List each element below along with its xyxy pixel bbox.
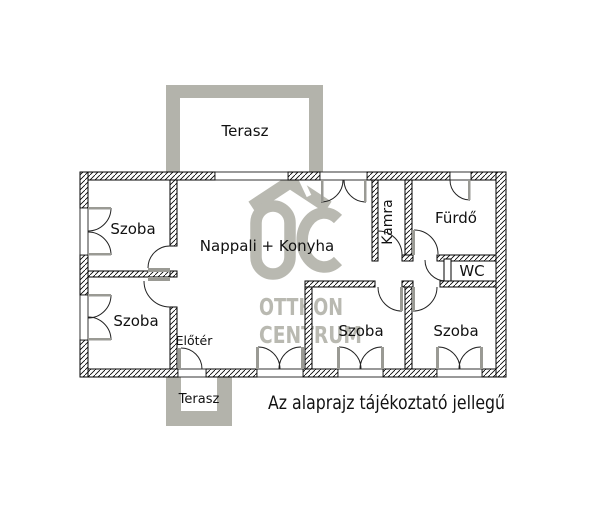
door-opening [178,369,206,377]
door-leaf [256,347,259,369]
floor-plan-page: OTTHON CENTRUM Terasz Terasz [0,0,604,516]
wall-segment [305,287,312,369]
door-leaf [301,347,304,369]
window-swing-arc [450,180,470,200]
door-swing-arc [378,287,402,311]
wall-segment [440,281,496,287]
room-label-hall: Előtér [176,333,214,348]
window-leaf [88,294,111,297]
room-label-pantry: Kamra [380,199,396,245]
door-swing-arc [258,347,280,369]
wall-segment [367,172,450,180]
door-leaf [321,180,324,202]
door-swing-arc [344,180,366,202]
wall-segment [170,271,177,277]
door-swing-arc [425,260,446,281]
room-label-living-kitchen: Nappali + Konyha [200,237,334,255]
door-swing-arc [181,348,202,369]
door-leaf [364,180,367,202]
wall-segment [80,172,88,208]
wall-segment [80,255,88,295]
terrace-top-wall [309,85,323,172]
window-leaf [88,207,111,210]
window-swing-arc [360,347,382,369]
window [450,172,471,180]
window-leaf [337,347,340,369]
terrace-top-wall [166,85,180,172]
wall-segment [305,281,375,287]
door-opening [257,369,303,377]
room-label-szoba-bottom-left: Szoba [113,312,158,330]
wall-segment [80,340,88,377]
wall-segment [170,180,177,246]
terrace-bottom: Terasz [166,377,232,426]
window-swing-arc [339,347,361,369]
window-leaf [468,180,471,200]
door-leaf [148,268,170,272]
door-leaf [412,230,415,255]
terrace-top-wall [166,85,323,98]
terrace-top-label: Terasz [221,122,269,140]
window-leaf [88,253,111,256]
door-leaf [178,348,181,369]
wall-segment [206,369,257,377]
window-leaf [88,338,111,341]
wall-segment [372,180,378,261]
window [338,369,383,377]
door-swing-arc [144,281,170,307]
wall-segment [405,180,412,261]
room-label-bathroom: Fürdő [435,209,477,227]
window-leaf [480,347,483,369]
wall-segment [402,255,413,261]
window-swing-arc [88,232,111,255]
room-label-szoba-bottom-middle: Szoba [338,322,383,340]
door-opening [320,172,367,180]
window-swing-arc [88,208,111,231]
floor-plan-svg: OTTHON CENTRUM Terasz Terasz [0,0,604,516]
door-swing-arc [148,246,170,268]
wall-segment [80,369,178,377]
room-label-szoba-top-left: Szoba [110,220,155,238]
watermark-otthon: OTTHON [259,295,343,321]
window-leaf [436,347,439,369]
window [80,295,88,340]
wall-segment [496,172,506,377]
wall-segment [288,172,320,180]
wall-segment [471,172,496,180]
wall-segment [405,287,412,369]
door-swing-arc [413,287,437,311]
door-leaf [148,277,170,281]
wall-segment [402,281,413,287]
terrace-bottom-label: Terasz [178,392,220,407]
window-leaf [381,347,384,369]
disclaimer-text: Az alaprajz tájékoztató jellegű [268,392,505,414]
wc-door-leaf [444,259,451,281]
window [215,172,288,180]
window [437,369,482,377]
terrace-top: Terasz [166,85,323,172]
wall-segment [80,172,215,180]
wall-segment [383,369,437,377]
door-leaf [400,287,403,311]
room-label-wc: WC [459,262,484,280]
window [80,208,88,255]
window-swing-arc [459,347,481,369]
door-leaf [412,287,415,311]
window-swing-arc [438,347,460,369]
room-label-szoba-bottom-right: Szoba [433,322,478,340]
window-swing-arc [88,295,111,318]
door-swing-arc [414,230,438,254]
door-swing-arc [279,347,301,369]
wall-segment [303,369,338,377]
window-swing-arc [88,317,111,340]
